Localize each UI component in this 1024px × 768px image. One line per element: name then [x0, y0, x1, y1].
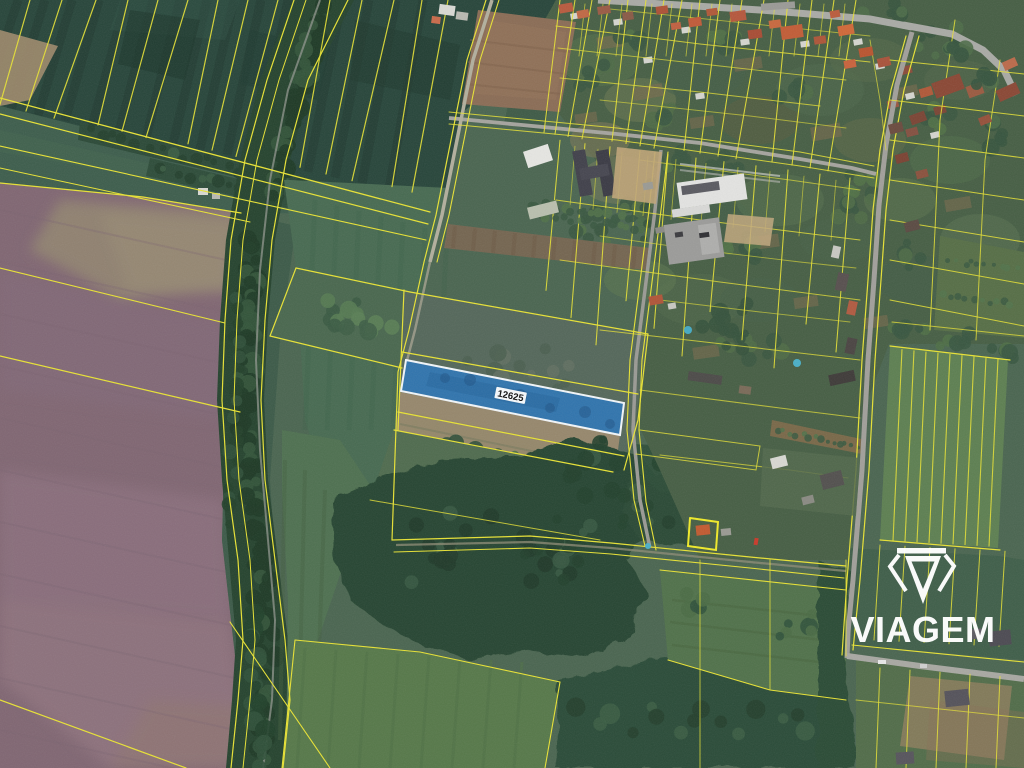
- svg-text:VIAGEM: VIAGEM: [850, 609, 995, 650]
